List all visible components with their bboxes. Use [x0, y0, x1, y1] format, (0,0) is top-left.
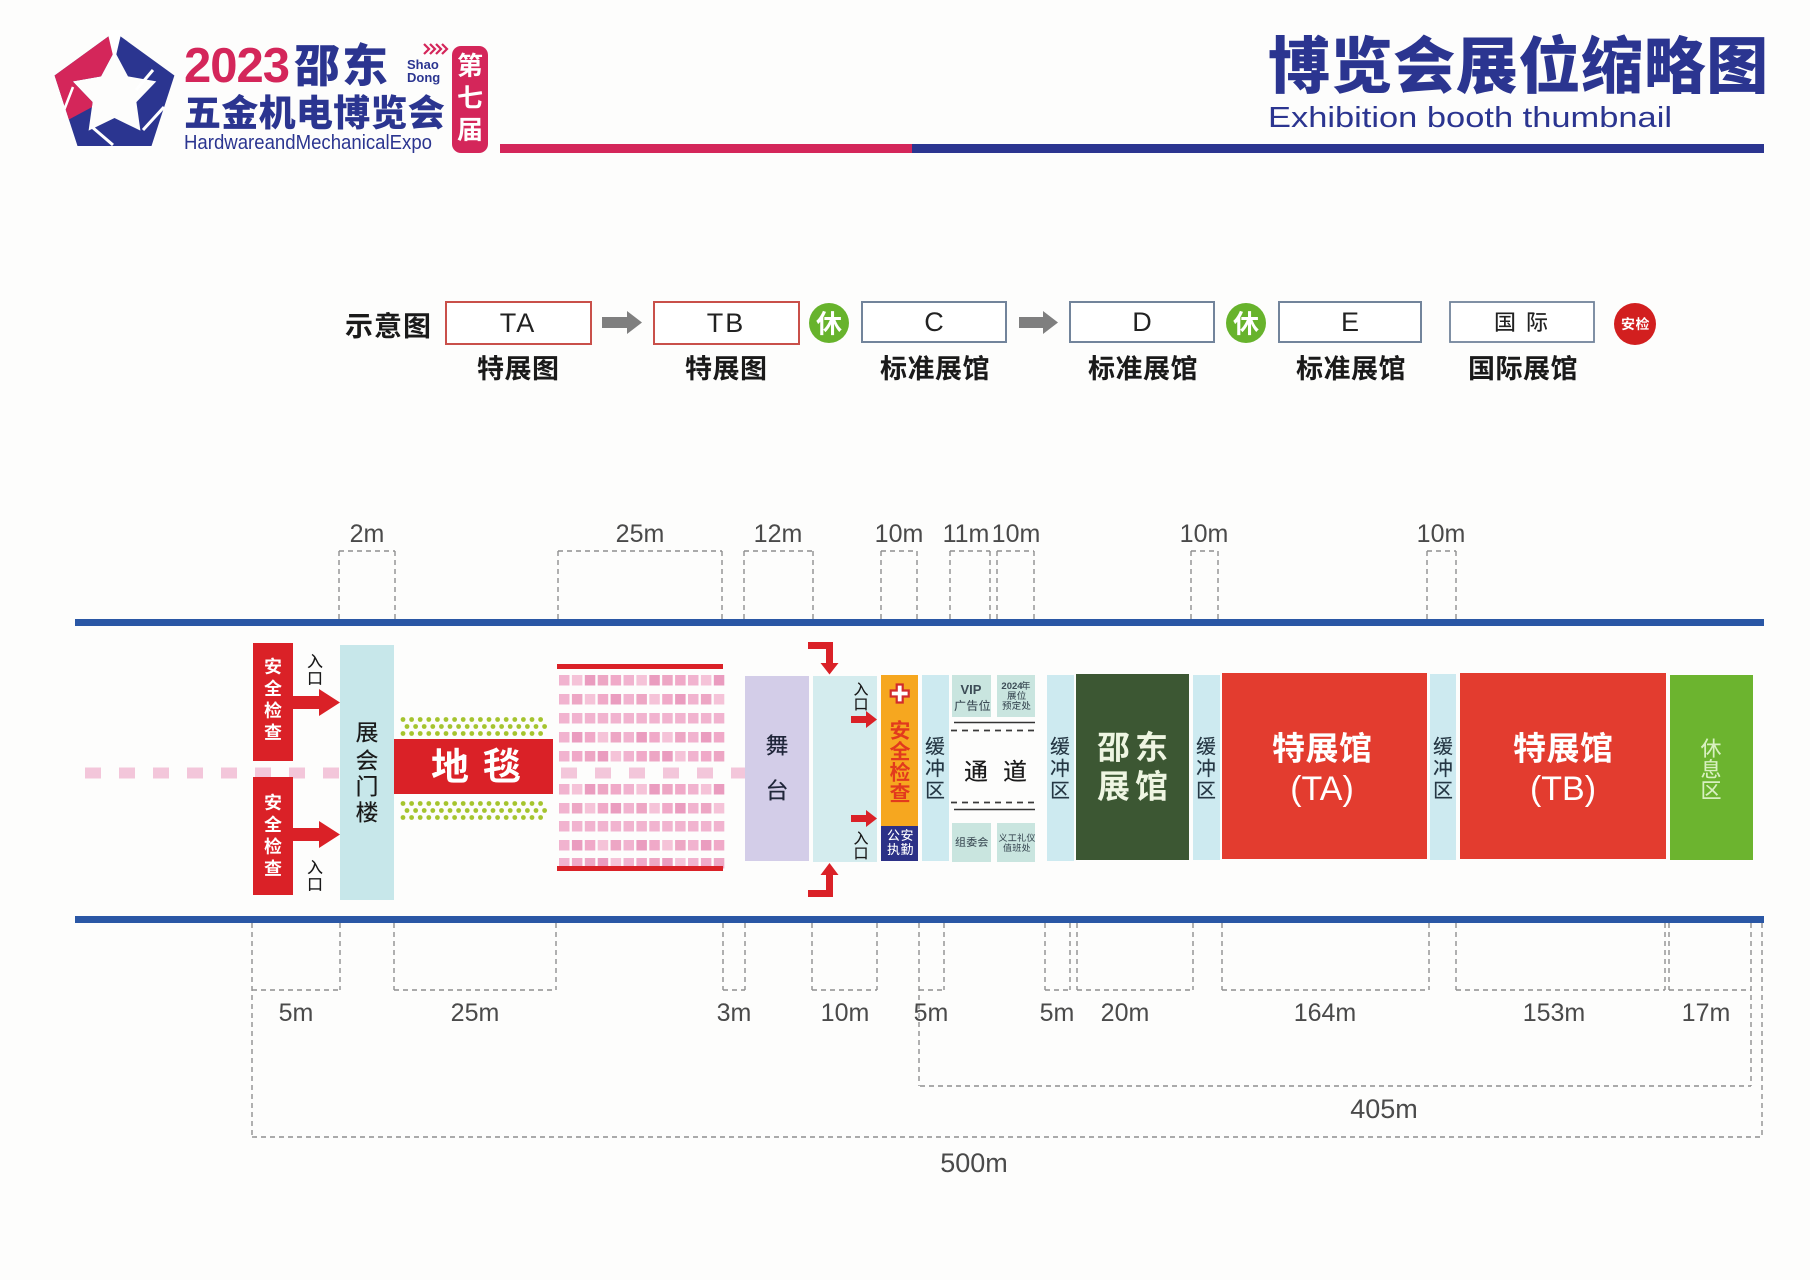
svg-text:10m: 10m	[821, 999, 870, 1027]
svg-text:25m: 25m	[616, 520, 665, 548]
svg-text:25m: 25m	[451, 999, 500, 1027]
svg-text:2024: 2024	[1001, 681, 1023, 692]
svg-text:12m: 12m	[754, 520, 803, 548]
svg-text:5m: 5m	[279, 999, 314, 1027]
svg-text:Exhibition booth thumbnail: Exhibition booth thumbnail	[1268, 102, 1672, 134]
svg-text:5m: 5m	[1040, 999, 1075, 1027]
svg-text:17m: 17m	[1682, 999, 1731, 1027]
svg-text:D: D	[1132, 307, 1152, 337]
svg-text:E: E	[1341, 307, 1359, 337]
svg-text:2m: 2m	[350, 520, 385, 548]
svg-text:10m: 10m	[1180, 520, 1229, 548]
svg-text:Dong: Dong	[407, 70, 440, 85]
svg-text:10m: 10m	[1417, 520, 1466, 548]
svg-text:2023: 2023	[184, 39, 289, 93]
svg-text:(TB): (TB)	[1530, 770, 1596, 808]
svg-text:20m: 20m	[1101, 999, 1150, 1027]
svg-text:164m: 164m	[1294, 999, 1357, 1027]
svg-text:VIP: VIP	[961, 682, 982, 697]
svg-text:3m: 3m	[717, 999, 752, 1027]
svg-text:(TA): (TA)	[1290, 770, 1354, 808]
svg-text:10m: 10m	[992, 520, 1041, 548]
svg-text:C: C	[924, 307, 944, 337]
svg-text:5m: 5m	[914, 999, 949, 1027]
svg-text:405m: 405m	[1350, 1094, 1418, 1124]
svg-text:500m: 500m	[940, 1148, 1008, 1178]
svg-text:153m: 153m	[1523, 999, 1586, 1027]
svg-text:TA: TA	[500, 308, 537, 338]
svg-text:11m: 11m	[943, 520, 990, 548]
svg-text:TB: TB	[707, 308, 746, 338]
svg-text:HardwareandMechanicalExpo: HardwareandMechanicalExpo	[184, 132, 432, 154]
svg-text:10m: 10m	[875, 520, 924, 548]
